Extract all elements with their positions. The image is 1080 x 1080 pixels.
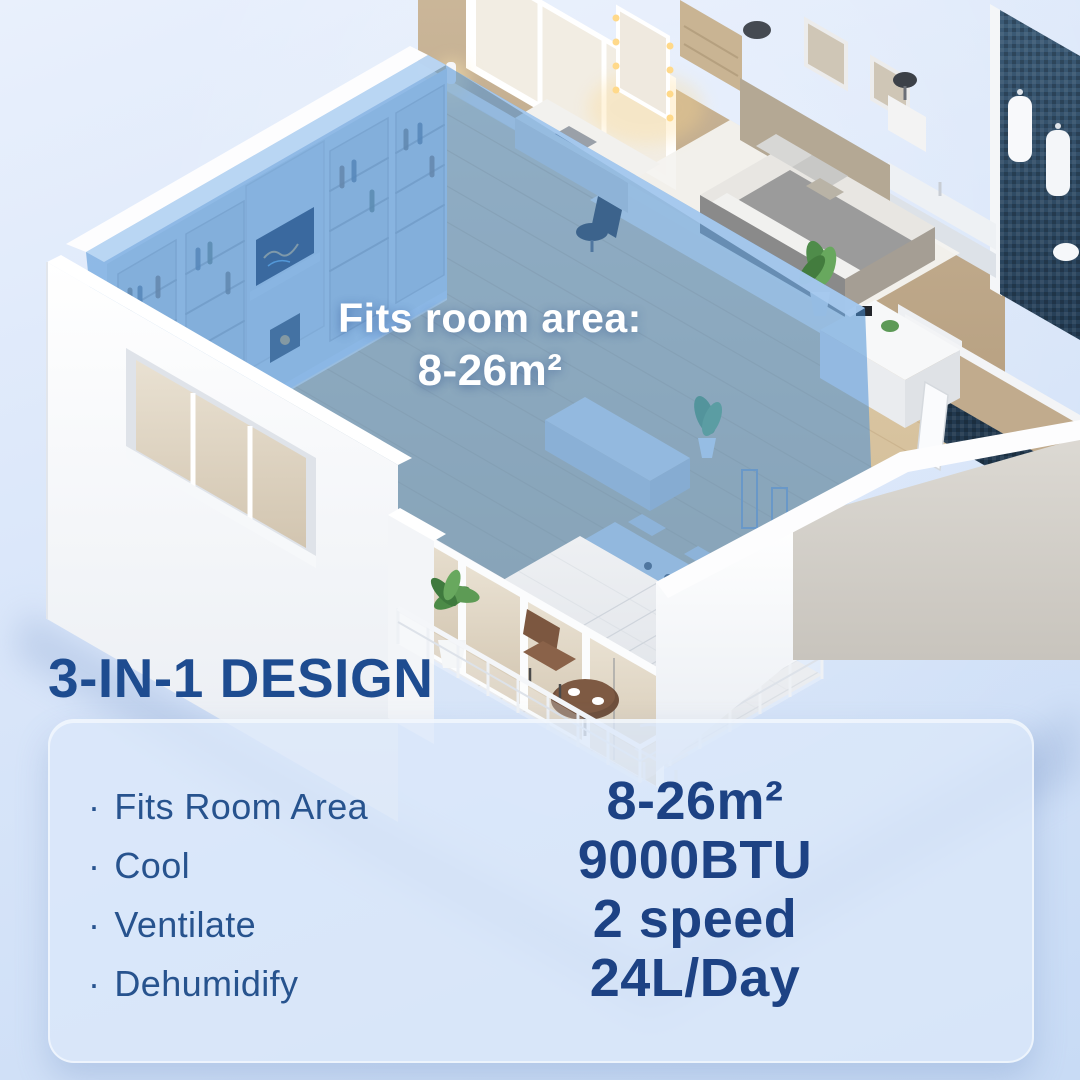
bullet-dot: · bbox=[88, 954, 100, 1013]
feature-label-row: ·Fits Room Area bbox=[88, 777, 368, 836]
feature-label: Dehumidify bbox=[114, 963, 298, 1004]
feature-value: 24L/Day bbox=[480, 949, 910, 1008]
feature-label-row: ·Dehumidify bbox=[88, 954, 368, 1013]
picture-frame bbox=[806, 20, 846, 88]
caption-line1: Fits room area: bbox=[270, 292, 710, 344]
toilet bbox=[1053, 243, 1079, 261]
feature-label-row: ·Cool bbox=[88, 836, 368, 895]
feature-label: Fits Room Area bbox=[114, 786, 368, 827]
section-heading: 3-IN-1 DESIGN bbox=[48, 646, 433, 710]
bullet-dot: · bbox=[88, 777, 100, 836]
caption-line2: 8-26m² bbox=[270, 344, 710, 398]
feature-value: 8-26m² bbox=[480, 772, 910, 831]
product-infographic: Fits room area: 8-26m² 3-IN-1 DESIGN ·Fi… bbox=[0, 0, 1080, 1080]
bullet-dot: · bbox=[88, 836, 100, 895]
room-area-caption: Fits room area: 8-26m² bbox=[270, 292, 710, 398]
dresser bbox=[680, 0, 771, 92]
feature-label-list: ·Fits Room Area ·Cool ·Ventilate ·Dehumi… bbox=[88, 777, 368, 1013]
features-card: ·Fits Room Area ·Cool ·Ventilate ·Dehumi… bbox=[48, 719, 1034, 1063]
feature-value: 2 speed bbox=[480, 890, 910, 949]
feature-value: 9000BTU bbox=[480, 831, 910, 890]
bullet-dot: · bbox=[88, 895, 100, 954]
feature-label: Cool bbox=[114, 845, 190, 886]
feature-label: Ventilate bbox=[114, 904, 256, 945]
feature-label-row: ·Ventilate bbox=[88, 895, 368, 954]
feature-value-list: 8-26m² 9000BTU 2 speed 24L/Day bbox=[480, 772, 910, 1008]
